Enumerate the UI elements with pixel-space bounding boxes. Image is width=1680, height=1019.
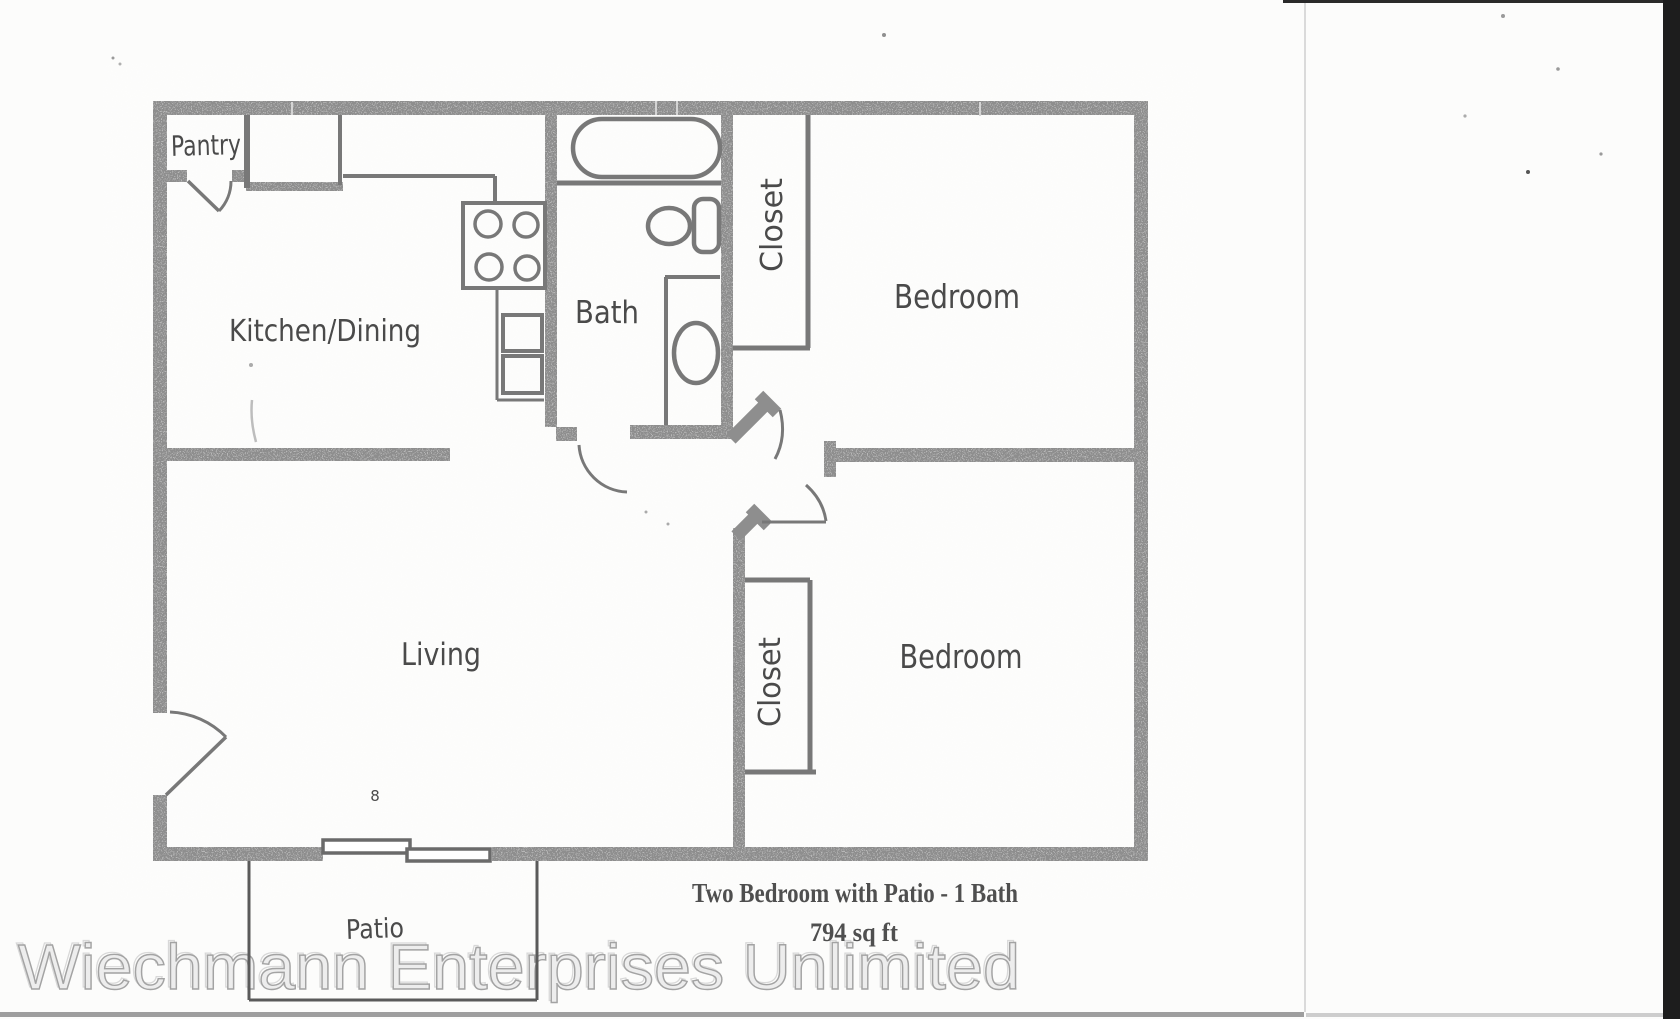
- counter-bottom-bar: [246, 182, 343, 191]
- floorplan-drawing: Wiechmann Enterprises Unlimited Wiechman…: [0, 0, 1680, 1019]
- wall-joint-tick: [291, 102, 293, 115]
- room-label-bedroom-bottom: Bedroom: [900, 637, 1023, 676]
- room-label-bath: Bath: [575, 295, 639, 331]
- room-label-kitchen-dining: Kitchen/Dining: [229, 314, 421, 349]
- scan-speck: [1463, 114, 1466, 117]
- page-background: [0, 0, 1680, 1019]
- scan-speck: [1556, 67, 1560, 71]
- wall-pantry-stub-left: [163, 170, 187, 182]
- scanner-edge-strip: [1663, 0, 1680, 1019]
- scanned-floorplan-page: Wiechmann Enterprises Unlimited Wiechman…: [0, 0, 1680, 1019]
- wall-joint-tick: [676, 101, 678, 115]
- scan-speck: [882, 33, 886, 37]
- wall-exterior-bottom-left: [153, 847, 323, 861]
- caption-title: Two Bedroom with Patio - 1 Bath: [692, 878, 1018, 908]
- wall-kitchen-living: [160, 448, 450, 461]
- room-label-bedroom-top: Bedroom: [894, 277, 1020, 316]
- scan-speck: [1501, 14, 1505, 18]
- sliding-door-panel: [323, 840, 410, 853]
- scan-speck: [1599, 152, 1602, 155]
- wall-exterior-bottom-right: [492, 847, 1148, 861]
- wall-bedroom1-bottom: [833, 448, 1148, 462]
- scan-seam-line: [1304, 0, 1306, 1012]
- wall-bath-closet: [721, 115, 733, 431]
- page-top-edge: [1283, 0, 1680, 3]
- wall-exterior-right: [1134, 101, 1148, 861]
- scan-speck: [112, 57, 115, 60]
- room-label-patio: Patio: [345, 913, 404, 946]
- wall-bath-bottom: [630, 425, 733, 439]
- scan-speck: [249, 363, 253, 367]
- room-label-pantry: Pantry: [171, 128, 242, 163]
- wall-joint-tick: [655, 101, 657, 115]
- room-label-closet-bottom: Closet: [753, 637, 788, 727]
- wall-exterior-top: [153, 101, 1148, 115]
- wall-exterior-left-upper: [153, 101, 167, 713]
- scan-speck: [119, 63, 122, 66]
- wall-bedroom1-door-jamb: [824, 441, 836, 477]
- wall-joint-tick: [979, 102, 981, 116]
- page-bottom-edge-right: [1306, 1013, 1663, 1017]
- room-label-living: Living: [401, 637, 481, 673]
- sliding-door-panel: [407, 849, 490, 861]
- scan-speck: [667, 523, 670, 526]
- room-label-closet-top: Closet: [755, 178, 790, 272]
- wall-bath-door-stub: [556, 427, 577, 441]
- scan-speck: [1526, 170, 1530, 174]
- caption-sqft: 794 sq ft: [810, 918, 898, 947]
- print-artifact-mark: 8: [370, 787, 380, 805]
- scan-speck: [645, 511, 648, 514]
- page-bottom-edge-left: [0, 1012, 1304, 1017]
- wall-bedroom2-west: [733, 528, 745, 861]
